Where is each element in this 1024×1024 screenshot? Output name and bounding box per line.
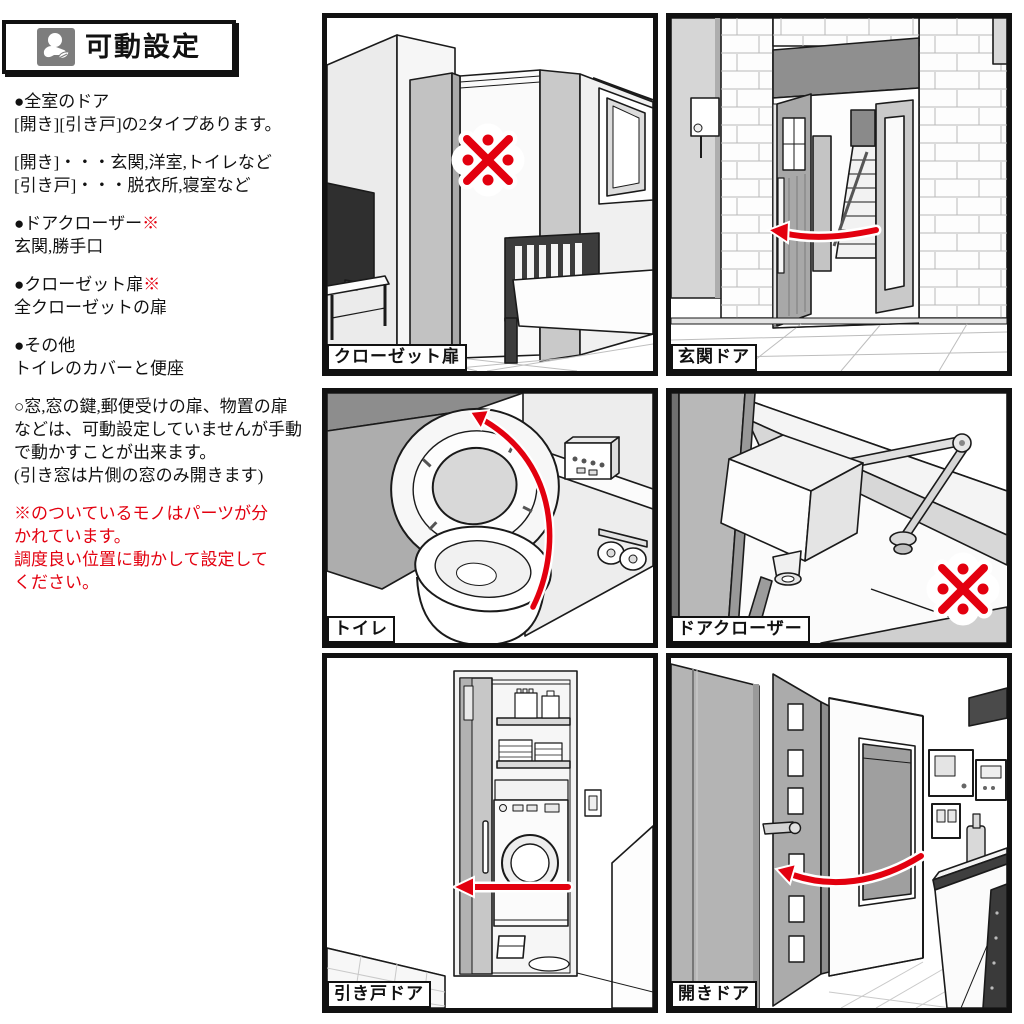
reference-mark: ※ [142, 214, 159, 233]
closet-scene-illustration [327, 18, 653, 371]
panel-hinged-door: 開きドア [666, 653, 1012, 1013]
panel-label: クローゼット扉 [327, 344, 467, 371]
panel-closet-door: クローゼット扉 [322, 13, 658, 376]
hinged-door-scene-illustration [671, 658, 1007, 1008]
page-title: 可動設定 [85, 34, 201, 61]
paragraph: ●その他 トイレのカバーと便座 [14, 334, 316, 380]
panel-sliding-door: 引き戸ドア [322, 653, 658, 1013]
panel-label: 引き戸ドア [327, 981, 431, 1008]
panel-label: 玄関ドア [671, 344, 757, 371]
panel-label: 開きドア [671, 981, 757, 1008]
paragraph: [開き]・・・玄関,洋室,トイレなど [引き戸]・・・脱衣所,寝室など [14, 151, 316, 197]
paragraph: ●クローゼット扉※ 全クローゼットの扉 [14, 273, 316, 319]
panel-entrance-door: 玄関ドア [666, 13, 1012, 376]
reference-mark: ※ [143, 275, 160, 294]
paragraph: ●全室のドア [開き][引き戸]の2タイプあります。 [14, 90, 316, 136]
paragraph: ●ドアクローザー※ 玄関,勝手口 [14, 212, 316, 258]
instructions-text: ●全室のドア [開き][引き戸]の2タイプあります。 [開き]・・・玄関,洋室,… [14, 90, 316, 609]
paragraph: ○窓,窓の鍵,郵便受けの扉、物置の扉 などは、可動設定していませんが手動 で動か… [14, 395, 316, 487]
panel-label: ドアクローザー [671, 616, 810, 643]
panel-door-closer: ドアクローザー [666, 388, 1012, 648]
panel-toilet: トイレ [322, 388, 658, 648]
entrance-scene-illustration [671, 18, 1007, 371]
reference-mark-annotation [460, 132, 516, 188]
paragraph-warning: ※のついているモノはパーツが分 かれています。 調度良い位置に動かして設定して … [14, 502, 316, 594]
sliding-door-scene-illustration [327, 658, 653, 1008]
toilet-scene-illustration [327, 393, 653, 643]
reference-mark-annotation [935, 561, 991, 617]
hand-with-sprout-icon [37, 28, 75, 66]
section-title-box: 可動設定 [2, 20, 236, 74]
panel-label: トイレ [327, 616, 395, 643]
door-closer-scene-illustration [671, 393, 1007, 643]
